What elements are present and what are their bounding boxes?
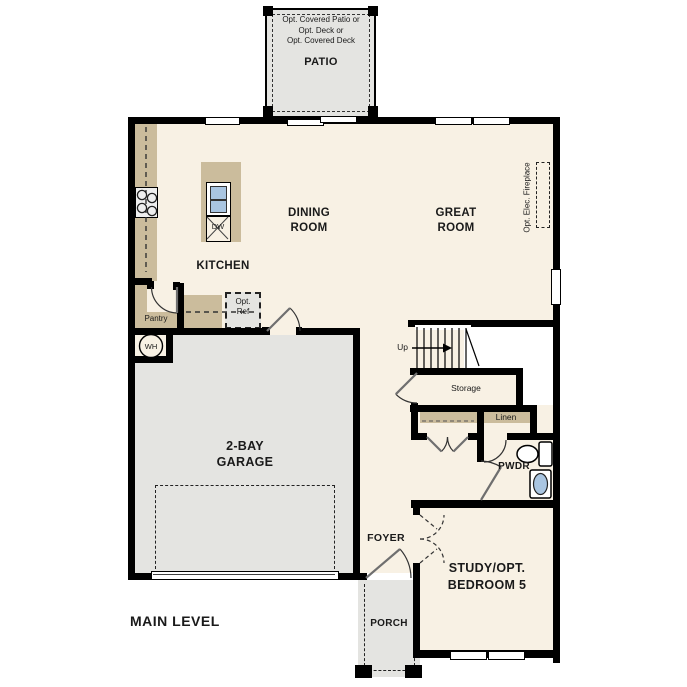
- fireplace-optional: [536, 162, 550, 228]
- patio-post: [263, 106, 273, 118]
- stairwell-void: [523, 327, 553, 405]
- study-line: STUDY/OPT.: [420, 560, 554, 577]
- wall: [300, 328, 360, 335]
- hall-counter: [184, 295, 222, 328]
- island-sink-basin: [210, 200, 227, 213]
- window: [450, 651, 487, 660]
- garage-door: [151, 571, 339, 580]
- wall: [507, 433, 560, 440]
- dining-room-line: ROOM: [270, 221, 348, 236]
- floor-plan: Opt. Covered Patio or Opt. Deck or Opt. …: [0, 0, 687, 687]
- island-sink-basin: [210, 186, 227, 200]
- dining-room-line: DINING: [270, 206, 348, 221]
- door-hinge: [262, 327, 270, 335]
- window: [435, 117, 472, 125]
- wall: [413, 500, 420, 515]
- great-room-label: GREAT ROOM: [417, 206, 495, 236]
- pantry-label: Pantry: [135, 314, 177, 324]
- garage-label: 2-BAY GARAGE: [193, 438, 297, 470]
- wall: [353, 328, 360, 580]
- kitchen-label: KITCHEN: [178, 259, 268, 273]
- fireplace-label: Opt. Elec. Fireplace: [523, 154, 534, 242]
- dining-room-label: DINING ROOM: [270, 206, 348, 236]
- window: [488, 651, 525, 660]
- door-hinge: [173, 282, 180, 290]
- stair-landing-cut: [415, 325, 471, 330]
- garage-line: 2-BAY: [193, 438, 297, 454]
- wall: [128, 356, 173, 363]
- wall: [410, 405, 537, 412]
- opt-ref-line: Ref: [226, 307, 260, 317]
- storage-label: Storage: [424, 383, 508, 394]
- sliding-door-panel: [320, 116, 357, 123]
- powder-label: PWDR: [494, 461, 534, 474]
- door-hinge: [147, 281, 154, 289]
- stairs-up-label: Up: [394, 342, 411, 353]
- window: [551, 269, 561, 305]
- patio-note: Opt. Covered Patio or Opt. Deck or Opt. …: [268, 15, 374, 47]
- linen-label: Linen: [482, 412, 530, 423]
- study-line: BEDROOM 5: [420, 577, 554, 594]
- porch-post: [355, 665, 372, 678]
- main-level-title: MAIN LEVEL: [130, 613, 270, 631]
- wall: [410, 368, 523, 375]
- wall: [411, 500, 560, 508]
- porch-post: [405, 665, 422, 678]
- study-label: STUDY/OPT. BEDROOM 5: [420, 560, 554, 594]
- patio-note-line: Opt. Deck or: [268, 26, 374, 37]
- porch-label: PORCH: [363, 618, 415, 631]
- water-heater-label: WH: [139, 342, 163, 351]
- window: [205, 117, 240, 125]
- great-room-line: GREAT: [417, 206, 495, 221]
- patio-post: [368, 106, 378, 118]
- garage-line: GARAGE: [193, 454, 297, 470]
- door-hinge: [296, 327, 302, 335]
- opt-ref-line: Opt.: [226, 297, 260, 307]
- sliding-door-panel: [287, 119, 324, 126]
- wall: [128, 328, 267, 335]
- patio-note-line: Opt. Covered Deck: [268, 36, 374, 47]
- patio-label: PATIO: [268, 56, 374, 70]
- opt-ref-label: Opt. Ref: [226, 297, 260, 317]
- window: [473, 117, 510, 125]
- patio-note-line: Opt. Covered Patio or: [268, 15, 374, 26]
- foyer-label: FOYER: [361, 532, 411, 545]
- wall: [128, 117, 135, 580]
- driveway-dashed-outline: [155, 485, 335, 574]
- wall: [177, 283, 184, 330]
- coat-closet-shelf: [420, 412, 477, 423]
- wall: [553, 117, 560, 663]
- great-room-line: ROOM: [417, 221, 495, 236]
- dishwasher-label: DW: [207, 222, 229, 231]
- cooktop-box: [135, 187, 158, 218]
- wall: [411, 433, 427, 440]
- wall: [413, 563, 420, 658]
